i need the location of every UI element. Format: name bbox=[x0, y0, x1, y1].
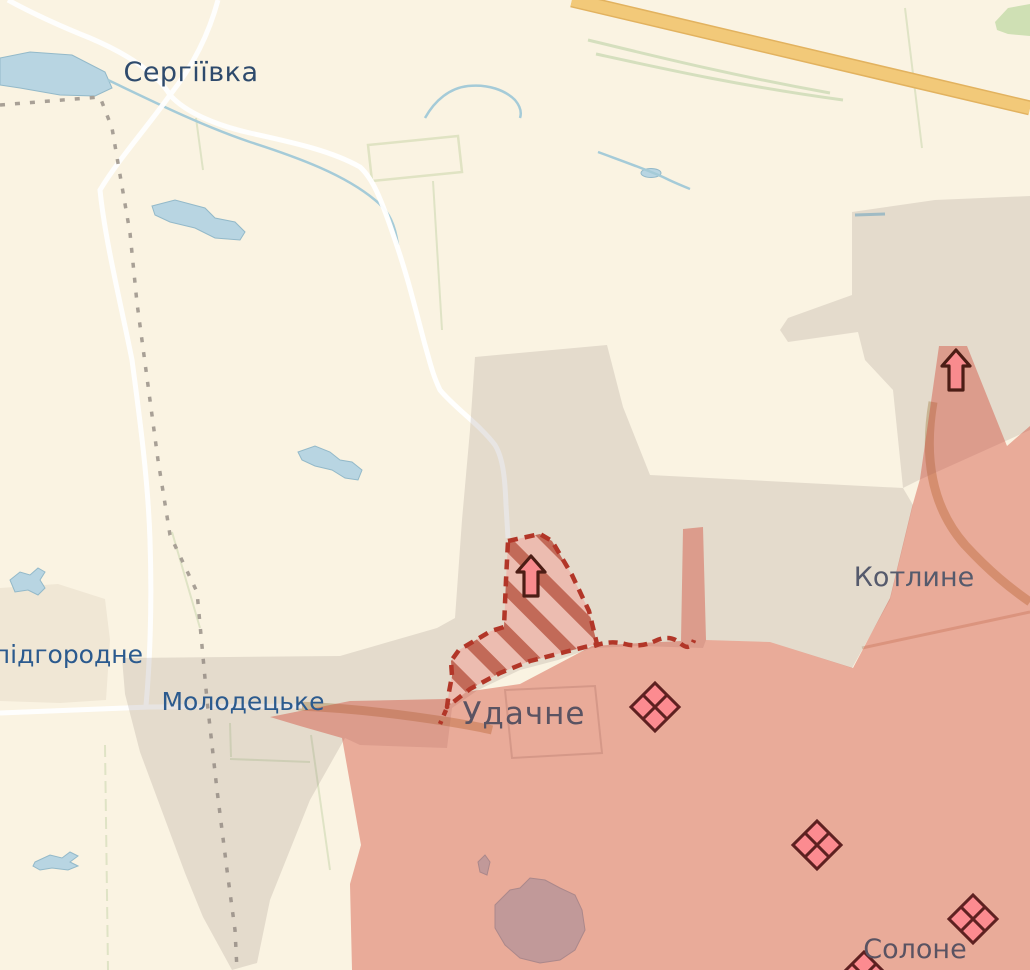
label-kotlyne: Котлине bbox=[854, 562, 975, 593]
label-molodetske: Молодецьке bbox=[161, 687, 324, 716]
map-canvas[interactable]: Сергіївка опідгородне Молодецьке Удачне … bbox=[0, 0, 1030, 970]
war-map-svg[interactable]: Сергіївка опідгородне Молодецьке Удачне … bbox=[0, 0, 1030, 970]
label-novopidhorodne: опідгородне bbox=[0, 640, 143, 669]
label-serhiivka: Сергіївка bbox=[123, 57, 258, 88]
label-udachne: Удачне bbox=[463, 696, 586, 732]
label-solone: Солоне bbox=[863, 934, 966, 965]
